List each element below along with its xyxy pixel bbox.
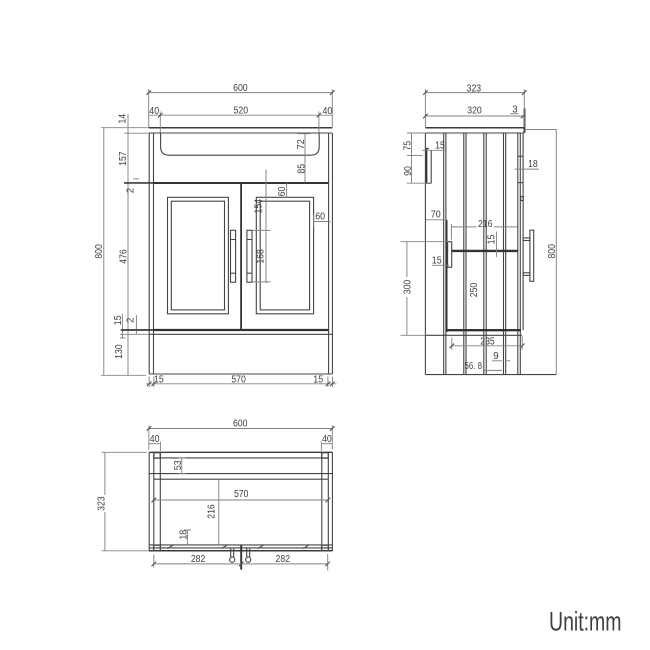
svg-text:15: 15: [113, 315, 124, 325]
svg-text:520: 520: [234, 106, 249, 117]
svg-text:300: 300: [402, 279, 413, 294]
svg-text:130: 130: [114, 344, 125, 359]
svg-text:2: 2: [126, 188, 137, 193]
svg-text:15: 15: [432, 255, 442, 266]
svg-text:Unit:mm: Unit:mm: [549, 607, 622, 637]
svg-text:323: 323: [467, 84, 482, 95]
svg-text:40: 40: [322, 434, 332, 445]
svg-text:800: 800: [94, 244, 105, 259]
svg-text:216: 216: [478, 219, 493, 230]
svg-text:157: 157: [118, 151, 129, 166]
svg-text:85: 85: [296, 164, 307, 174]
svg-text:323: 323: [96, 496, 107, 511]
svg-text:570: 570: [234, 489, 249, 500]
svg-text:90: 90: [403, 166, 414, 176]
svg-text:154: 154: [253, 198, 264, 213]
svg-text:320: 320: [467, 106, 482, 117]
svg-text:282: 282: [191, 554, 206, 565]
svg-text:476: 476: [119, 249, 130, 264]
svg-text:800: 800: [547, 244, 558, 259]
svg-text:15: 15: [486, 235, 497, 245]
svg-text:72: 72: [296, 139, 307, 149]
svg-text:14: 14: [117, 113, 128, 123]
svg-text:600: 600: [233, 83, 248, 94]
svg-text:250: 250: [469, 282, 480, 297]
svg-text:2: 2: [126, 318, 137, 323]
svg-text:15: 15: [313, 374, 323, 385]
svg-text:216: 216: [207, 504, 218, 519]
svg-text:53: 53: [173, 460, 184, 470]
svg-text:70: 70: [431, 210, 441, 221]
svg-text:570: 570: [231, 374, 246, 385]
svg-text:75: 75: [403, 141, 414, 151]
svg-text:40: 40: [149, 106, 159, 117]
svg-text:40: 40: [150, 434, 160, 445]
svg-text:18: 18: [179, 530, 190, 540]
svg-text:56. 8: 56. 8: [465, 361, 483, 372]
svg-text:235: 235: [480, 336, 495, 347]
svg-text:168: 168: [255, 249, 266, 264]
svg-text:15: 15: [435, 140, 445, 151]
svg-text:282: 282: [276, 554, 291, 565]
svg-text:60: 60: [315, 211, 325, 222]
svg-text:18: 18: [528, 159, 538, 170]
svg-text:15: 15: [154, 374, 164, 385]
svg-text:40: 40: [323, 106, 333, 117]
svg-text:60: 60: [277, 186, 288, 196]
svg-text:600: 600: [233, 418, 248, 429]
svg-text:9: 9: [493, 351, 498, 362]
